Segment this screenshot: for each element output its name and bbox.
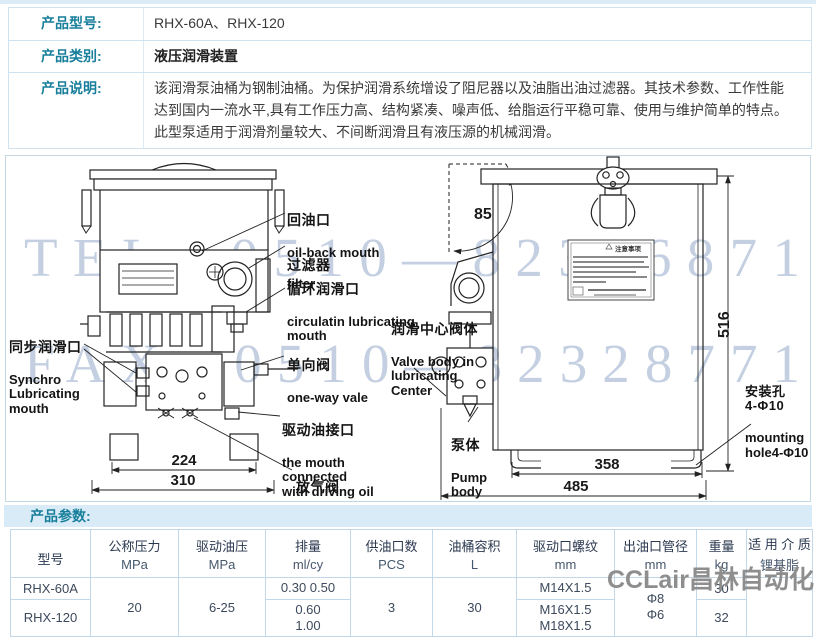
cell-thread-rhx-120: M16X1.5 M18X1.5 <box>517 599 615 637</box>
synchro-label-en: Synchro Lubricating mouth <box>9 373 82 416</box>
cell-oil-ports: 3 <box>351 578 433 637</box>
cell-weight-rhx-120: 32 <box>697 599 747 637</box>
front-view-drawing <box>80 164 298 461</box>
pump-body-label: 泵体 Pump body <box>451 420 487 502</box>
product-description-label: 产品说明: <box>9 73 144 148</box>
oil-back-mouth-label-cn: 回油口 <box>287 213 379 228</box>
col-header-nominal-pressure: 公称压力MPa <box>91 530 179 578</box>
product-model-label: 产品型号: <box>9 8 144 40</box>
product-info-section: 产品型号: RHX-60A、RHX-120 产品类别: 液压润滑装置 产品说明:… <box>8 7 812 149</box>
valve-center-label: 润滑中心阀体 Valve body in lubricating Center <box>391 304 478 415</box>
warning-plate: 注意事项 <box>568 240 654 300</box>
product-description-row: 产品说明: 该润滑泵油桶为钢制油桶。为保护润滑系统增设了阻尼器以及油脂出油过滤器… <box>9 73 811 149</box>
col-header-drive-thread: 驱动口螺纹mm <box>517 530 615 578</box>
product-model-value: RHX-60A、RHX-120 <box>144 8 811 40</box>
air-vent-valve-label: 放气阀 air vent valve <box>296 462 378 502</box>
driving-oil-label-cn: 驱动油接口 <box>282 423 374 438</box>
vendor-watermark: CCLair昌林自动化 <box>607 560 814 596</box>
svg-text:注意事项: 注意事项 <box>615 244 642 253</box>
cell-nominal-pressure: 20 <box>91 578 179 637</box>
dim-224: 224 <box>171 452 196 469</box>
dim-485: 485 <box>563 478 588 495</box>
technical-drawing-area: TEL: 0510—82306871 FAX: 0510—82328771 <box>5 155 811 502</box>
cell-barrel-volume: 30 <box>433 578 517 637</box>
product-category-label: 产品类别: <box>9 41 144 73</box>
col-header-displacement: 排量ml/cy <box>266 530 351 578</box>
mounting-hole-label: 安装孔 4-Φ10 mounting hole4-Φ10 <box>745 367 808 477</box>
top-strip <box>0 0 816 4</box>
pump-body-label-cn: 泵体 <box>451 438 487 453</box>
mounting-hole-label-cn: 安装孔 4-Φ10 <box>745 385 808 414</box>
dim-516: 516 <box>716 312 734 339</box>
cell-displacement-rhx-60a: 0.30 0.50 <box>266 578 351 599</box>
circulating-label-cn: 循环润滑口 <box>287 282 415 297</box>
one-way-valve-label-cn: 单向阀 <box>287 358 368 373</box>
pump-body-label-en: Pump body <box>451 471 487 500</box>
one-way-valve-label-en: one-way vale <box>287 391 368 405</box>
cell-model-rhx-60a: RHX-60A <box>11 578 91 599</box>
product-description-value: 该润滑泵油桶为钢制油桶。为保护润滑系统增设了阻尼器以及油脂出油过滤器。其技术参数… <box>144 73 811 148</box>
col-header-driving-pressure: 驱动油压MPa <box>179 530 266 578</box>
synchro-lubricating-mouth-label: 同步润滑口 Synchro Lubricating mouth <box>9 322 82 433</box>
synchro-label-cn: 同步润滑口 <box>9 340 82 355</box>
dim-310: 310 <box>170 472 195 489</box>
product-params-label: 产品参数: <box>4 506 91 526</box>
cell-displacement-rhx-120: 0.60 1.00 <box>266 599 351 637</box>
dim-358: 358 <box>594 456 619 473</box>
col-header-barrel-volume: 油桶容积L <box>433 530 517 578</box>
valve-center-label-en: Valve body in lubricating Center <box>391 355 478 398</box>
cell-driving-pressure: 6-25 <box>179 578 266 637</box>
col-header-oil-ports: 供油口数PCS <box>351 530 433 578</box>
valve-center-label-cn: 润滑中心阀体 <box>391 322 478 337</box>
product-spec-page: 产品型号: RHX-60A、RHX-120 产品类别: 液压润滑装置 产品说明:… <box>0 0 816 599</box>
mounting-hole-label-en: mounting hole4-Φ10 <box>745 431 808 460</box>
product-params-bar: 产品参数: <box>4 505 812 527</box>
product-category-row: 产品类别: 液压润滑装置 <box>9 41 811 74</box>
dim-85: 85 <box>474 206 492 224</box>
product-model-row: 产品型号: RHX-60A、RHX-120 <box>9 8 811 41</box>
cell-thread-rhx-60a: M14X1.5 <box>517 578 615 599</box>
cell-model-rhx-120: RHX-120 <box>11 599 91 637</box>
col-header-model: 型号 <box>11 530 91 578</box>
product-category-value: 液压润滑装置 <box>144 41 811 73</box>
air-vent-label-cn: 放气阀 <box>296 480 378 495</box>
